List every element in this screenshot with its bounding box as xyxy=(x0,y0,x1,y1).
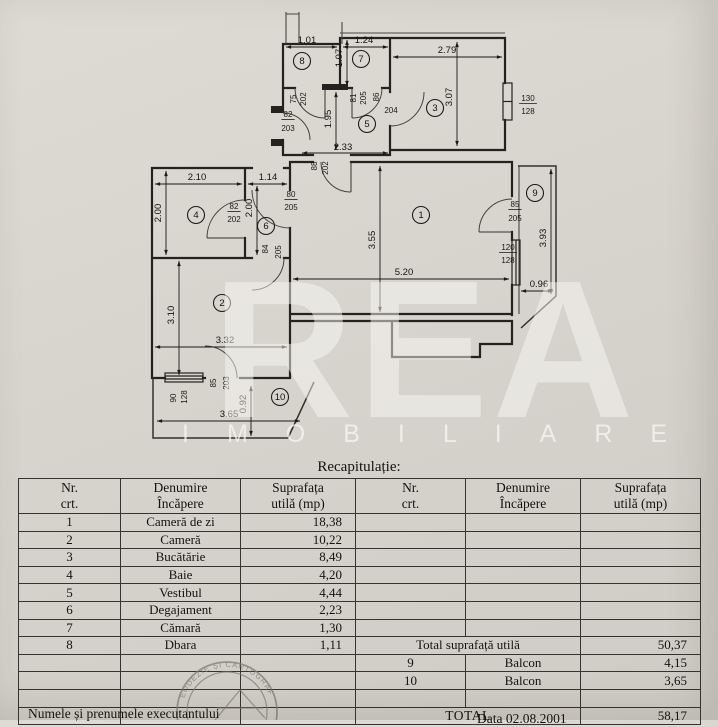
table-cell xyxy=(356,619,466,637)
table-cell xyxy=(466,689,581,707)
table-cell: 3,65 xyxy=(581,672,701,690)
table-cell xyxy=(581,549,701,567)
table-cell xyxy=(19,689,121,707)
door-size-label: 84 xyxy=(261,244,270,253)
door-size-label: 202 xyxy=(321,161,330,175)
table-cell xyxy=(466,566,581,584)
table-cell: 3 xyxy=(19,549,121,567)
room-number: 10 xyxy=(275,392,286,403)
room-number: 6 xyxy=(263,221,268,232)
table-cell: Cămară xyxy=(121,619,241,637)
date-label: Data 02.08.2001 xyxy=(477,711,567,727)
table-cell: Cameră de zi xyxy=(121,514,241,532)
table-cell: Dbara xyxy=(121,637,241,655)
dimension-label: 3.10 xyxy=(166,306,177,325)
table-cell: 4,15 xyxy=(581,654,701,672)
dimension-label: 1.07 xyxy=(334,49,345,68)
table-cell xyxy=(581,619,701,637)
table-cell: 2 xyxy=(19,531,121,549)
door-size-label: 203 xyxy=(281,124,295,133)
door-size-label: 128 xyxy=(180,390,189,404)
dimension-label: 3.93 xyxy=(538,229,549,248)
door-size-label: 205 xyxy=(284,203,298,212)
plan-doors xyxy=(205,88,512,378)
table-cell: 4,44 xyxy=(241,584,356,602)
dimension-label: 2.33 xyxy=(334,142,353,153)
door-size-label: 85 xyxy=(511,200,520,209)
door-size-label: 120 xyxy=(501,243,515,252)
door-size-label: 202 xyxy=(299,92,308,106)
table-cell: 8 xyxy=(19,637,121,655)
table-row: 9Balcon4,15 xyxy=(19,654,701,672)
door-size-label: 128 xyxy=(521,107,535,116)
table-row: 7Cămară1,30 xyxy=(19,619,701,637)
table-cell: Balcon xyxy=(466,672,581,690)
door-size-label: 75 xyxy=(289,94,298,103)
table-cell xyxy=(581,584,701,602)
table-cell xyxy=(581,601,701,619)
dimension-label: 2.00 xyxy=(244,199,255,218)
table-row: 8Dbara1,11Total suprafață utilă50,37 xyxy=(19,637,701,655)
table-cell xyxy=(19,672,121,690)
floor-plan-drawing: 1.011.241.072.793.071.952.332.101.142.00… xyxy=(0,0,718,460)
table-cell xyxy=(581,689,701,707)
dimension-label: 2.79 xyxy=(438,45,457,56)
dimension-label: 1.95 xyxy=(323,110,334,129)
table-cell xyxy=(356,601,466,619)
door-size-label: 85 xyxy=(209,378,218,387)
door-size-label: 82 xyxy=(284,110,293,119)
recap-table: Nr.crt. DenumireÎncăpere Suprafațautilă … xyxy=(18,478,701,725)
table-cell: 10,22 xyxy=(241,531,356,549)
table-cell xyxy=(466,514,581,532)
dimension-label: 1.24 xyxy=(355,35,374,46)
dimension-label: 3.32 xyxy=(216,335,235,346)
table-cell: 7 xyxy=(19,619,121,637)
door-size-label: 81 xyxy=(349,93,358,102)
plan-labels: 1.011.241.072.793.071.952.332.101.142.00… xyxy=(153,35,549,420)
total-value: 58,17 xyxy=(581,707,701,725)
recap-title: Recapitulație: xyxy=(0,459,718,476)
total-util-label: Total suprafață utilă xyxy=(356,637,581,655)
dimension-label: 2.00 xyxy=(153,204,164,223)
table-cell xyxy=(356,566,466,584)
table-row: 6Degajament2,23 xyxy=(19,601,701,619)
table-row: 4Baie4,20 xyxy=(19,566,701,584)
dimension-label: 0.92 xyxy=(238,395,249,414)
table-cell xyxy=(356,549,466,567)
table-cell xyxy=(356,689,466,707)
header-suprafata-right: Suprafațautilă (mp) xyxy=(581,479,701,514)
dimension-label: 3.65 xyxy=(220,409,239,420)
room-number: 8 xyxy=(299,56,304,67)
table-row: 5Vestibul4,44 xyxy=(19,584,701,602)
door-size-label: 205 xyxy=(508,214,522,223)
dimension-label: 1.01 xyxy=(298,35,317,46)
header-suprafata-left: Suprafațautilă (mp) xyxy=(241,479,356,514)
door-size-label: 205 xyxy=(359,91,368,105)
total-util-value: 50,37 xyxy=(581,637,701,655)
table-cell: Degajament xyxy=(121,601,241,619)
table-cell: Bucătărie xyxy=(121,549,241,567)
room-number: 2 xyxy=(219,298,224,309)
table-cell: 4,20 xyxy=(241,566,356,584)
table-row: 1Cameră de zi18,38 xyxy=(19,514,701,532)
table-cell: 10 xyxy=(356,672,466,690)
table-cell: 2,23 xyxy=(241,601,356,619)
door-size-label: 80 xyxy=(287,190,296,199)
room-number: 9 xyxy=(532,188,537,199)
table-cell xyxy=(19,654,121,672)
door-size-label: 202 xyxy=(227,215,241,224)
dimension-label: 1.14 xyxy=(259,172,278,183)
dimension-label: 5.20 xyxy=(395,267,414,278)
door-size-label: 128 xyxy=(501,256,515,265)
table-cell: 1 xyxy=(19,514,121,532)
room-number: 7 xyxy=(358,54,363,65)
door-size-label: 88 xyxy=(310,161,319,170)
door-size-label: 205 xyxy=(274,245,283,259)
table-cell: 1,30 xyxy=(241,619,356,637)
door-size-label: 90 xyxy=(169,393,178,402)
table-row: 10Balcon3,65 xyxy=(19,672,701,690)
dimension-label: 3.55 xyxy=(367,231,378,250)
door-size-label: 86 xyxy=(372,92,381,101)
door-size-label: 203 xyxy=(222,376,231,390)
dimension-label: 2.10 xyxy=(188,172,207,183)
table-cell xyxy=(356,514,466,532)
table-cell xyxy=(466,584,581,602)
table-cell: Balcon xyxy=(466,654,581,672)
table-cell: 6 xyxy=(19,601,121,619)
table-cell: 4 xyxy=(19,566,121,584)
table-cell: 18,38 xyxy=(241,514,356,532)
table-cell xyxy=(466,531,581,549)
table-cell xyxy=(356,531,466,549)
header-nr-crt-right: Nr.crt. xyxy=(356,479,466,514)
dimension-label: 3.07 xyxy=(444,88,455,107)
header-denumire-left: DenumireÎncăpere xyxy=(121,479,241,514)
door-size-label: 204 xyxy=(384,106,398,115)
table-header-row: Nr.crt. DenumireÎncăpere Suprafațautilă … xyxy=(19,479,701,514)
room-number: 1 xyxy=(418,210,423,221)
header-denumire-right: DenumireÎncăpere xyxy=(466,479,581,514)
table-cell xyxy=(466,619,581,637)
table-cell: 1,11 xyxy=(241,637,356,655)
room-number: 4 xyxy=(193,210,198,221)
table-cell xyxy=(581,514,701,532)
stamp-text: GEODEZIE ȘI CARTOGRAFIE xyxy=(167,658,276,699)
table-cell: Vestibul xyxy=(121,584,241,602)
room-number: 3 xyxy=(432,103,437,114)
dimension-label: 0.96 xyxy=(530,279,549,290)
table-row: 3Bucătărie8,49 xyxy=(19,549,701,567)
door-size-label: 130 xyxy=(521,94,535,103)
header-nr-crt-left: Nr.crt. xyxy=(19,479,121,514)
door-size-label: 82 xyxy=(230,202,239,211)
table-cell xyxy=(356,584,466,602)
scanned-document-page: 1.011.241.072.793.071.952.332.101.142.00… xyxy=(0,0,718,720)
table-cell xyxy=(581,566,701,584)
table-row: 2Cameră10,22 xyxy=(19,531,701,549)
table-cell: 9 xyxy=(356,654,466,672)
table-cell xyxy=(466,549,581,567)
table-row xyxy=(19,689,701,707)
table-cell xyxy=(466,601,581,619)
table-cell xyxy=(581,531,701,549)
table-cell: Cameră xyxy=(121,531,241,549)
table-cell: 5 xyxy=(19,584,121,602)
room-number: 5 xyxy=(364,119,369,130)
table-cell: 8,49 xyxy=(241,549,356,567)
table-cell: Baie xyxy=(121,566,241,584)
